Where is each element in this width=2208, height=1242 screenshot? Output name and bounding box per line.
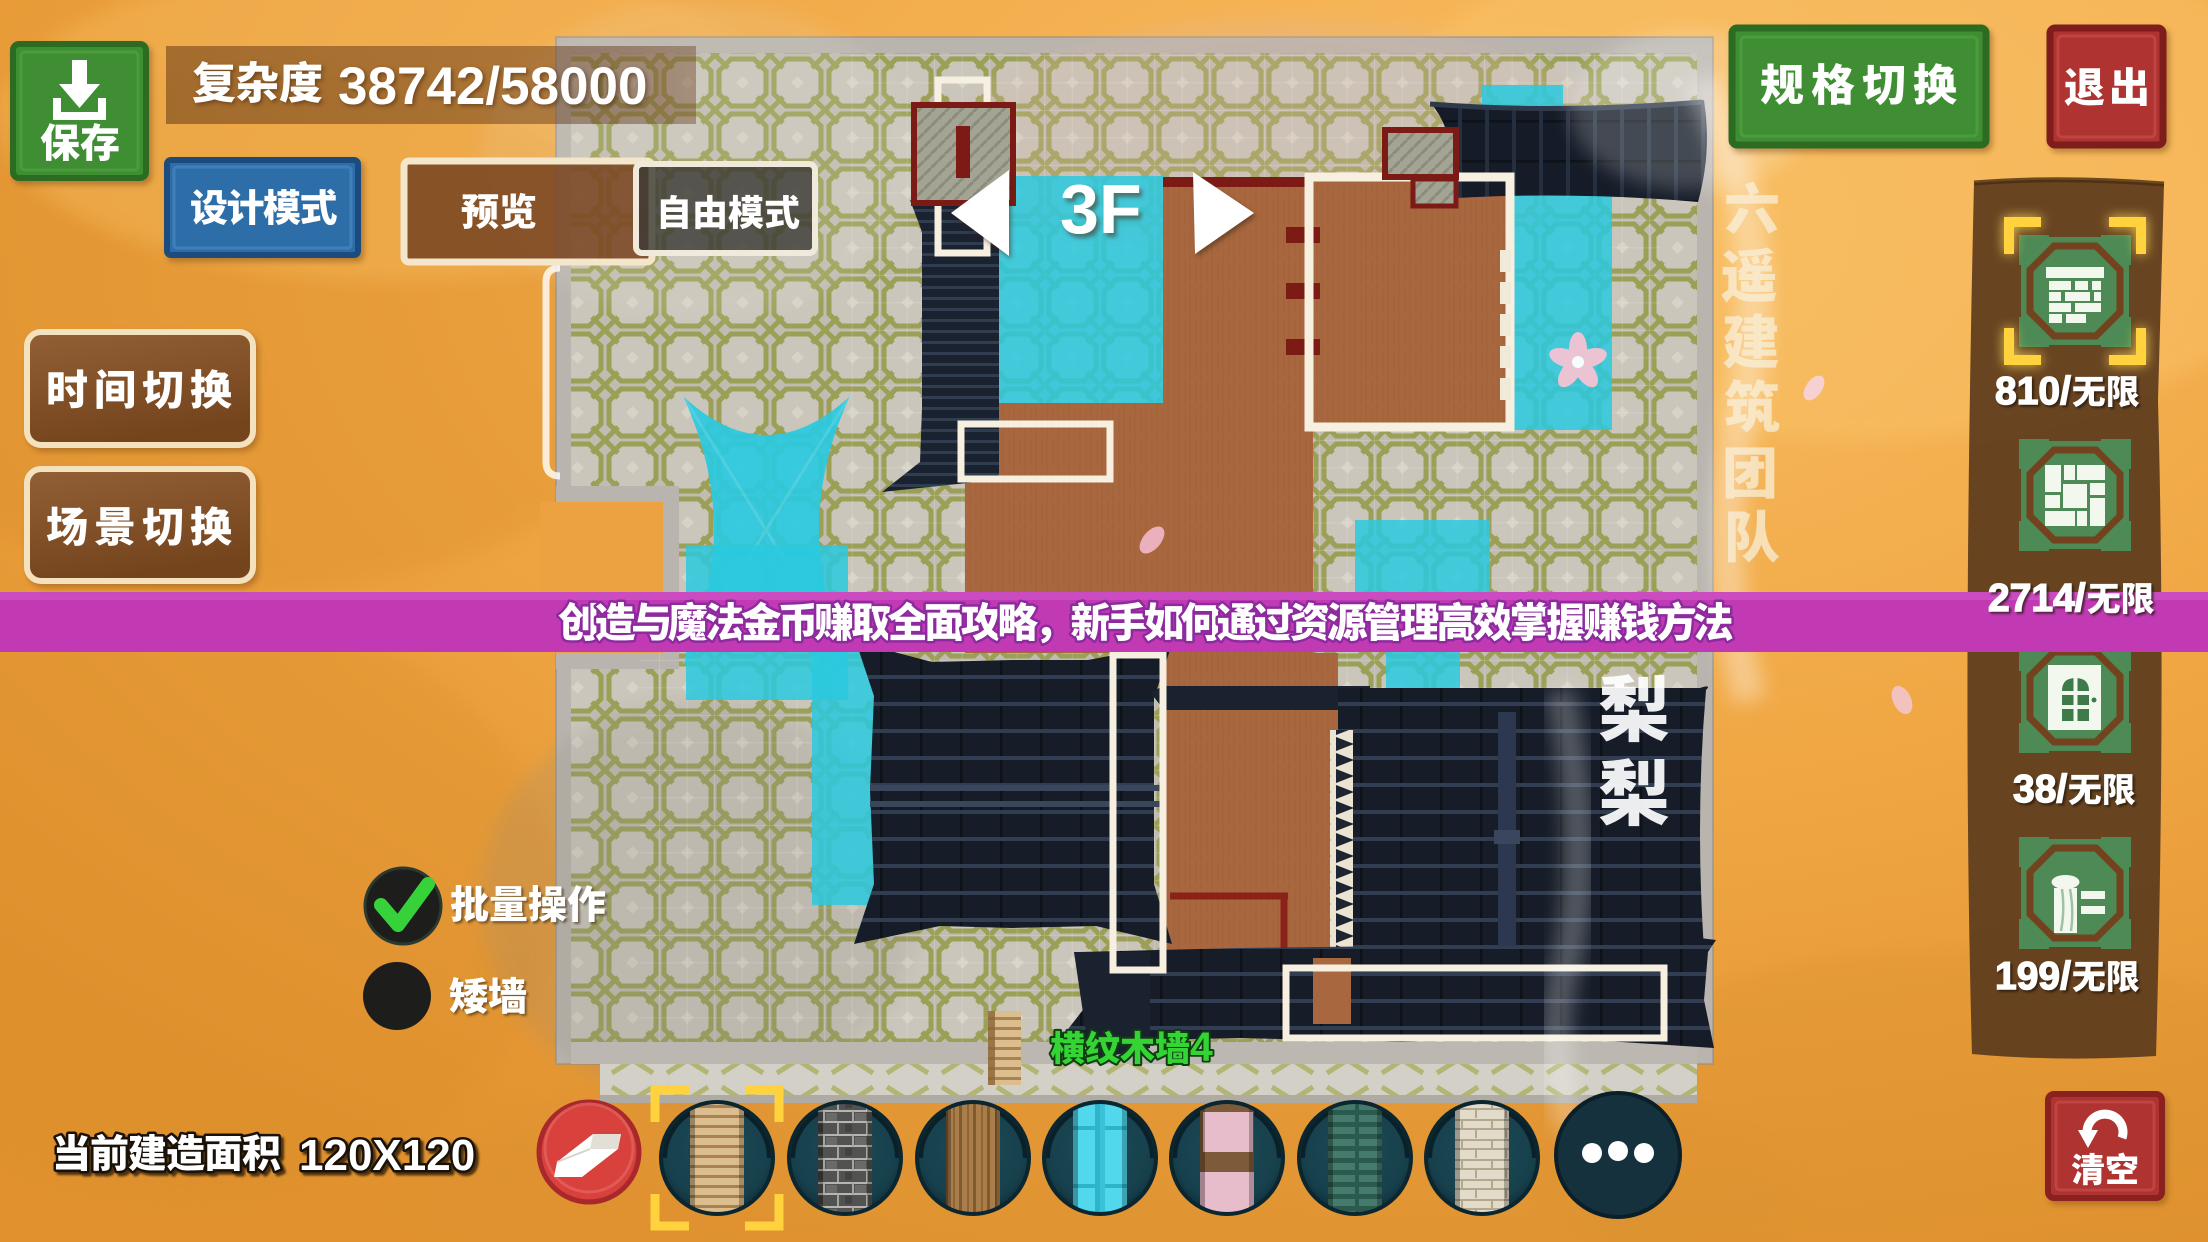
- svg-text:810/: 810/: [1995, 370, 2071, 413]
- svg-text:4: 4: [1190, 1024, 1213, 1070]
- svg-text:38/: 38/: [2013, 768, 2067, 811]
- svg-text:199/: 199/: [1995, 955, 2071, 998]
- svg-text:120X120: 120X120: [299, 1131, 475, 1180]
- svg-text:2714/: 2714/: [1988, 577, 2086, 620]
- svg-text:38742/58000: 38742/58000: [338, 57, 648, 116]
- svg-text:3F: 3F: [1060, 170, 1142, 248]
